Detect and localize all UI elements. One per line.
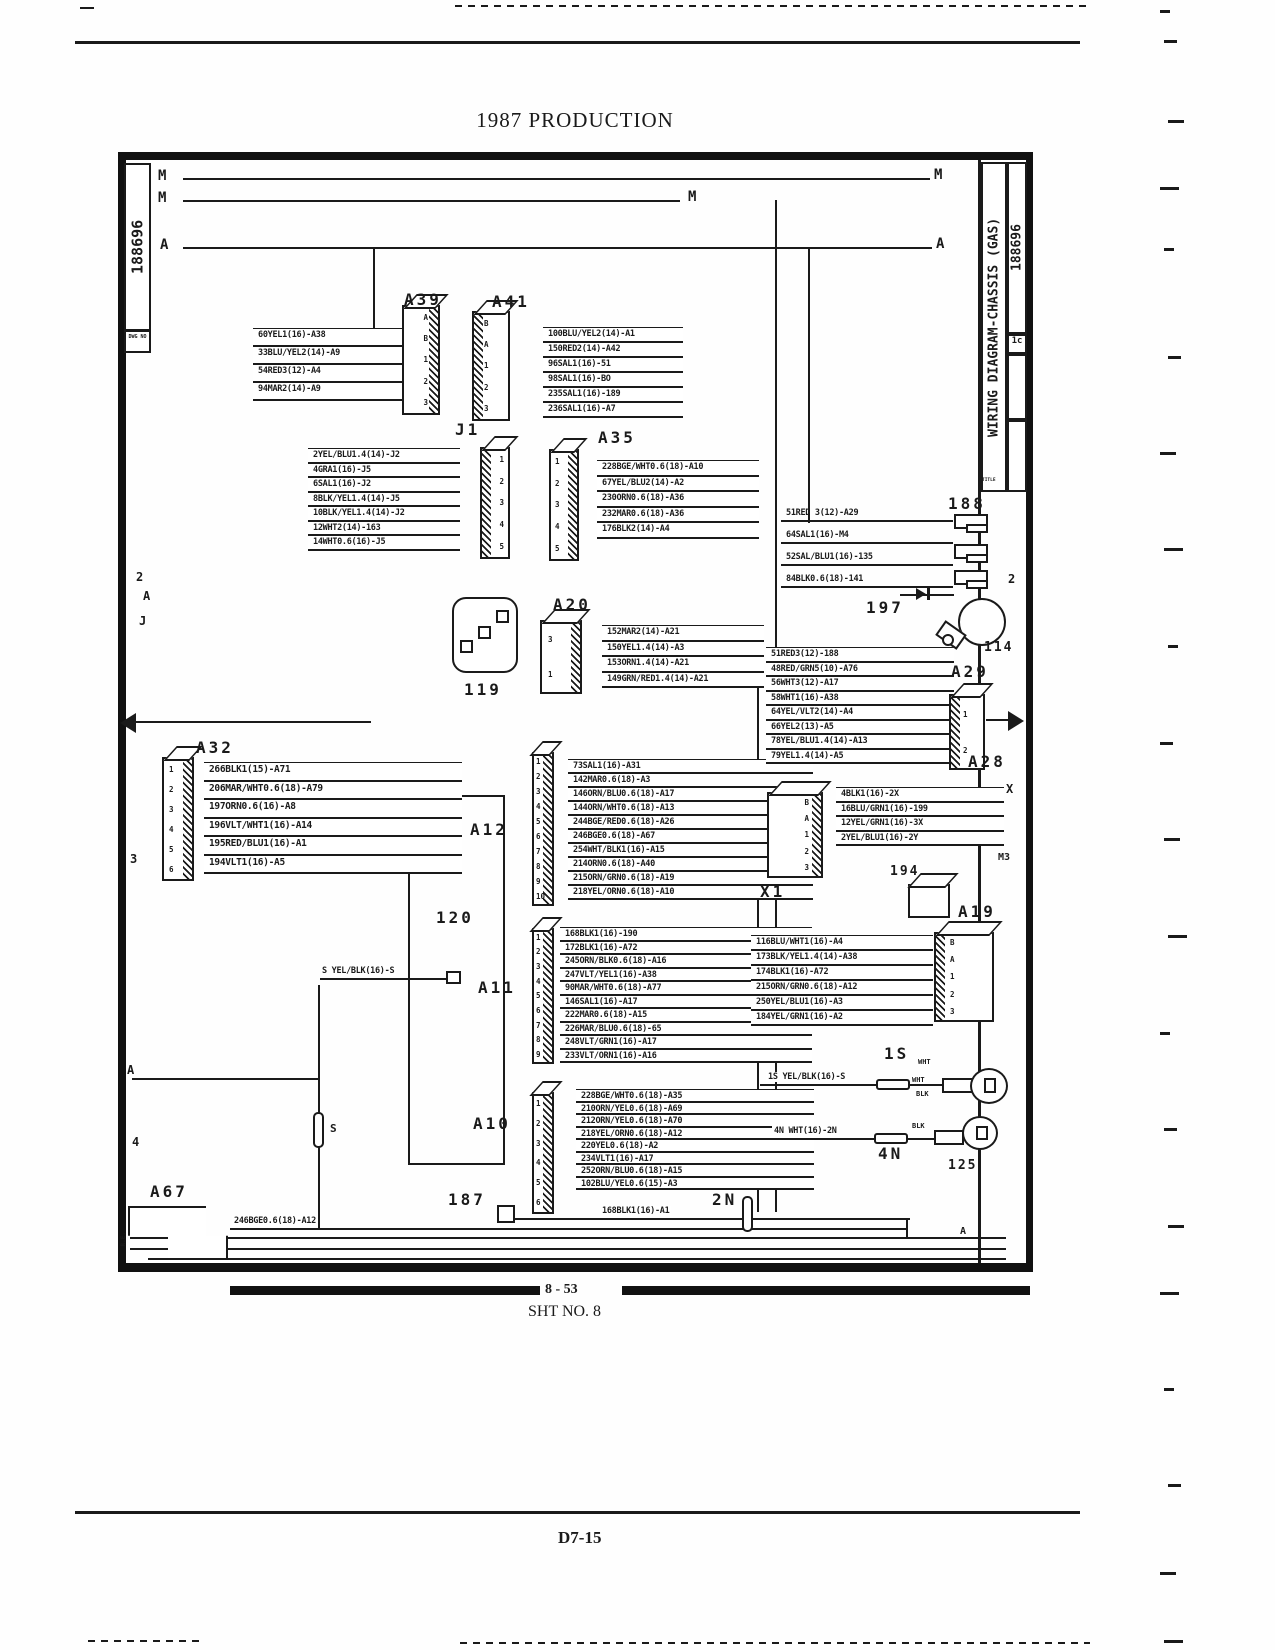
- bus-label-m-mid: M: [688, 189, 696, 205]
- lamp-contact: [984, 1078, 996, 1093]
- doc-number-right: 188696: [1007, 162, 1027, 334]
- component-119-knob: [460, 640, 473, 653]
- sheet-range: 8 - 53: [545, 1282, 578, 1298]
- edge-marker: 4: [132, 1135, 139, 1149]
- wire-label: 176BLK2(14)-A4: [597, 522, 759, 539]
- spade-terminal-icon: [966, 554, 988, 563]
- pin-number: 6: [169, 865, 174, 874]
- wire-label: 12YEL/GRN1(16)-3X: [836, 816, 1004, 832]
- pin-number: 7: [536, 847, 545, 856]
- wire-stack-a29: 51RED3(12)-18848RED/GRN5(10)-A7656WHT3(1…: [766, 648, 954, 764]
- bus-m1: [183, 178, 930, 180]
- wire-label: S YEL/BLK(16)-S: [320, 966, 396, 976]
- pin-number: 5: [536, 817, 545, 826]
- frame-right: [1026, 152, 1033, 1272]
- connector-a39: AB123: [402, 305, 440, 415]
- sheet-number: SHT NO. 8: [528, 1303, 601, 1321]
- pin-number: 5: [536, 991, 541, 1000]
- margin-tick: [1160, 187, 1179, 190]
- wire-color-tag: WHT: [918, 1058, 931, 1066]
- wire-label: 64YEL/VLT2(14)-A4: [766, 705, 954, 721]
- connector-label-a29: A29: [951, 662, 989, 681]
- margin-tick: [1168, 645, 1178, 648]
- titleblock-cell: [1007, 420, 1027, 492]
- margin-tick: [1160, 1032, 1170, 1035]
- margin-tick: [1160, 452, 1176, 455]
- doc-number-left: 188696: [124, 163, 151, 331]
- pin-number: 3: [499, 498, 504, 507]
- wire-label: 206MAR/WHT0.6(18)-A79: [204, 781, 462, 801]
- pin-number: 4: [536, 977, 541, 986]
- wire-stack-a35: 228BGE/WHT0.6(18)-A1067YEL/BLU2(14)-A223…: [597, 461, 759, 539]
- margin-tick: [1164, 1388, 1174, 1391]
- right-arrow-icon: [1008, 711, 1024, 731]
- connector-label-x1: X1: [760, 882, 785, 901]
- edge-marker: 2: [1008, 572, 1015, 586]
- component-label-2n: 2N: [712, 1190, 737, 1209]
- wire: [230, 1228, 908, 1230]
- wire-label: 4N WHT(16)-2N: [772, 1126, 839, 1136]
- margin-tick: [1168, 935, 1187, 938]
- wire-label: 235SAL1(16)-189: [543, 387, 683, 403]
- wire-label: 195RED/BLU1(16)-A1: [204, 836, 462, 856]
- wire-label: 60YEL1(16)-A38: [253, 328, 403, 347]
- diode-bar: [927, 588, 930, 600]
- connector-a67: [128, 1206, 228, 1260]
- connector-label-a41: A41: [492, 292, 530, 311]
- trunk: [808, 247, 810, 523]
- wire-stack-j1: 2YEL/BLU1.4(14)-J24GRA1(16)-J56SAL1(16)-…: [308, 449, 460, 551]
- pin-number: 1: [536, 757, 545, 766]
- wire-label: 150YEL1.4(14)-A3: [602, 641, 764, 658]
- connector-label-a11: A11: [478, 978, 516, 997]
- wiring-diagram-page: 1987 PRODUCTION 188696 DWG NO WIRING DIA…: [0, 0, 1275, 1650]
- wire-label: 232MAR0.6(18)-A36: [597, 507, 759, 524]
- pin-number: 9: [536, 877, 545, 886]
- margin-tick: [1164, 548, 1183, 551]
- pin-number: 2: [169, 785, 174, 794]
- bus-label-m-right: M: [934, 167, 942, 183]
- wire-label: 194VLT1(16)-A5: [204, 855, 462, 875]
- pin-number: 1: [536, 1099, 541, 1108]
- connector-label-a32: A32: [196, 738, 234, 757]
- pin-number: 5: [499, 542, 504, 551]
- pin-number: 2: [950, 990, 955, 999]
- margin-tick: [1168, 356, 1181, 359]
- pin-number: 3: [536, 1139, 541, 1148]
- wire-color-tag: BLK: [912, 1122, 925, 1130]
- wire-stack-188: 51RED 3(12)-A2964SAL1(16)-M452SAL/BLU1(1…: [781, 500, 953, 588]
- pin-number: 3: [950, 1007, 955, 1016]
- wire-color-tag: BLK: [916, 1090, 929, 1098]
- wire-label: 33BLU/YEL2(14)-A9: [253, 346, 403, 365]
- pin-number: 9: [536, 1050, 541, 1059]
- pin-number: 2: [555, 479, 560, 488]
- connector-label-a35: A35: [598, 428, 636, 447]
- pin-number: 6: [536, 832, 545, 841]
- wire: [132, 1078, 318, 1080]
- wire-label: 233VLT/ORN1(16)-A16: [560, 1049, 812, 1064]
- pin-number: 3: [484, 404, 489, 413]
- pin-number: 1: [484, 361, 489, 370]
- pin-number: A: [484, 340, 489, 349]
- component-114-body: [958, 598, 1006, 646]
- margin-tick: [1160, 1292, 1179, 1295]
- titleblock-cell: [1007, 354, 1027, 420]
- wire-label: 100BLU/YEL2(14)-A1: [543, 327, 683, 343]
- component-label-125: 125: [948, 1158, 977, 1173]
- edge-marker: 3: [130, 852, 137, 866]
- wire-label: 152MAR2(14)-A21: [602, 625, 764, 642]
- wire-label: 250YEL/BLU1(16)-A3: [751, 995, 933, 1011]
- edge-marker: A: [127, 1063, 134, 1077]
- inline-connector: [446, 971, 461, 984]
- wire-label: 2YEL/BLU1.4(14)-J2: [308, 448, 460, 464]
- wire-label: 51RED 3(12)-A29: [781, 499, 953, 522]
- dwg-no-label-left: DWG NO: [124, 330, 151, 353]
- wire-label: 58WHT1(16)-A38: [766, 691, 954, 707]
- pin-number: 2: [536, 772, 545, 781]
- wire-stack-a32: 266BLK1(15)-A71206MAR/WHT0.6(18)-A79197O…: [204, 763, 462, 874]
- wire-label: 79YEL1.4(14)-A5: [766, 749, 954, 765]
- wire: [760, 1084, 970, 1086]
- wire-label: 14WHT0.6(16)-J5: [308, 535, 460, 551]
- bus-label-m: M: [158, 168, 166, 184]
- margin-tick: [1164, 248, 1174, 251]
- pin-number: 1: [804, 830, 809, 839]
- page-title: 1987 PRODUCTION: [0, 108, 1150, 133]
- connector-label-a67: A67: [150, 1182, 188, 1201]
- sheet-bar-left: [230, 1286, 540, 1295]
- drawing-title-vertical: WIRING DIAGRAM-CHASSIS (GAS): [981, 162, 1007, 492]
- component-label-119: 119: [464, 680, 502, 699]
- wire-label: 51RED3(12)-188: [766, 647, 954, 663]
- pin-number: 2: [499, 477, 504, 486]
- pin-number: A: [804, 814, 809, 823]
- bus-label-a: A: [160, 237, 168, 253]
- wire-label: 230ORN0.6(18)-A36: [597, 491, 759, 508]
- connector-x1: BA123: [767, 792, 823, 878]
- pin-number: B: [950, 938, 955, 947]
- pin-number: 4: [169, 825, 174, 834]
- wire-stack-x1: 4BLK1(16)-2X16BLU/GRN1(16)-19912YEL/GRN1…: [836, 788, 1004, 846]
- margin-tick: [1160, 10, 1170, 13]
- wire-label: 52SAL/BLU1(16)-135: [781, 543, 953, 566]
- component-label-114: 114: [984, 640, 1013, 655]
- connector-label-j1: J1: [455, 420, 480, 439]
- wire-label: 234VLT1(16)-A17: [576, 1152, 814, 1166]
- wire-label: 215ORN/GRN0.6(18)-A12: [751, 980, 933, 996]
- wire: [515, 1218, 910, 1220]
- edge-marker: J: [139, 614, 146, 628]
- splice-label: S: [330, 1122, 337, 1135]
- pin-number: A: [950, 955, 955, 964]
- spade-terminal-icon: [966, 524, 988, 533]
- wire-label: 4GRA1(16)-J5: [308, 463, 460, 479]
- wire-label: 196VLT/WHT1(16)-A14: [204, 818, 462, 838]
- top-rule: [75, 41, 1080, 44]
- component-label-120: 120: [436, 908, 474, 927]
- wire-label: 6SAL1(16)-J2: [308, 477, 460, 493]
- bottom-dashed-rule: [460, 1642, 1090, 1644]
- pin-number: 1: [548, 670, 553, 679]
- wire-label: 48RED/GRN5(10)-A76: [766, 662, 954, 678]
- bottom-bus: [130, 1237, 1006, 1239]
- wire-label: 246BGE0.6(18)-A12: [232, 1216, 318, 1226]
- connector-a12: 12345678910: [532, 752, 554, 906]
- pin-number: A: [423, 313, 428, 322]
- lamp-socket-stem: [934, 1130, 964, 1145]
- wire-label: 173BLK/YEL1.4(14)-A38: [751, 950, 933, 966]
- wire-label: 84BLK0.6(18)-141: [781, 565, 953, 588]
- splice-capsule: [313, 1112, 324, 1148]
- pin-number: 3: [536, 787, 545, 796]
- trunk: [318, 985, 320, 1228]
- wire-label: 228BGE/WHT0.6(18)-A10: [597, 460, 759, 477]
- pin-number: 2: [536, 1119, 541, 1128]
- top-tick: [80, 7, 94, 9]
- pin-number: 6: [536, 1006, 541, 1015]
- frame-top: [118, 152, 1033, 160]
- pin-number: 2: [423, 377, 428, 386]
- wire-label: 12WHT2(14)-163: [308, 521, 460, 537]
- pin-number: 3: [804, 863, 809, 872]
- frame-bottom: [118, 1263, 1033, 1272]
- rev-cell: 1c: [1007, 334, 1027, 354]
- margin-tick: [1164, 838, 1180, 841]
- pin-number: 8: [536, 862, 545, 871]
- pin-number: 8: [536, 1035, 541, 1044]
- pin-number: 5: [536, 1178, 541, 1187]
- wire-label: 78YEL/BLU1.4(14)-A13: [766, 734, 954, 750]
- connector-a11: 123456789: [532, 928, 554, 1064]
- margin-tick: [1160, 1572, 1176, 1575]
- wire-stack-a20: 152MAR2(14)-A21150YEL1.4(14)-A3153ORN1.4…: [602, 626, 764, 688]
- margin-tick: [1160, 742, 1173, 745]
- edge-marker: A: [960, 1226, 966, 1237]
- pin-number: 3: [555, 500, 560, 509]
- component-label-188: 188: [948, 494, 986, 513]
- pin-number: 1: [423, 355, 428, 364]
- pin-number: 3: [169, 805, 174, 814]
- margin-tick: [1164, 40, 1177, 43]
- wire-label: 1S YEL/BLK(16)-S: [766, 1072, 847, 1082]
- bottom-bus: [130, 1248, 1006, 1250]
- title-label: TITLE: [982, 478, 996, 483]
- pin-number: 2: [804, 847, 809, 856]
- wire-color-tag: WHT: [912, 1076, 925, 1084]
- connector-label-a12: A12: [470, 820, 508, 839]
- pin-number: 4: [536, 802, 545, 811]
- connector-a32: 123456: [162, 757, 194, 881]
- component-label-187: 187: [448, 1190, 486, 1209]
- wire-label: 236SAL1(16)-A7: [543, 402, 683, 418]
- wire-stack-a10: 228BGE/WHT0.6(18)-A35210ORN/YEL0.6(18)-A…: [576, 1090, 814, 1190]
- lamp-contact: [976, 1126, 988, 1140]
- bottom-bus: [148, 1258, 1006, 1260]
- wire-label: 210ORN/YEL0.6(18)-A69: [576, 1102, 814, 1116]
- wire-label: 228BGE/WHT0.6(18)-A35: [576, 1089, 814, 1103]
- trunk: [373, 247, 375, 332]
- bottom-dashed-rule: [88, 1640, 200, 1642]
- pin-number: 3: [536, 962, 541, 971]
- wire-label: 266BLK1(15)-A71: [204, 762, 462, 782]
- pin-number: 4: [555, 522, 560, 531]
- edge-marker: 2: [136, 570, 143, 584]
- component-187: [497, 1205, 515, 1223]
- wire-label: 102BLU/YEL0.6(15)-A3: [576, 1177, 814, 1191]
- wire-label: 248VLT/GRN1(16)-A17: [560, 1035, 812, 1050]
- pin-number: 1: [963, 710, 968, 719]
- connector-a19: BA123: [934, 932, 994, 1022]
- edge-marker: X: [1006, 782, 1013, 796]
- pin-number: 2: [536, 947, 541, 956]
- corner-note: R.E.: [120, 1232, 127, 1246]
- pin-number: 1: [555, 457, 560, 466]
- sheet-bar-right: [622, 1286, 1030, 1295]
- wire-label: 2YEL/BLU1(16)-2Y: [836, 831, 1004, 847]
- margin-tick: [1168, 1225, 1184, 1228]
- component-label-1s: 1S: [884, 1044, 909, 1063]
- wire-label: 98SAL1(16)-BO: [543, 372, 683, 388]
- edge-marker: A: [143, 589, 150, 603]
- wire-stack-a19: 116BLU/WHT1(16)-A4173BLK/YEL1.4(14)-A381…: [751, 936, 933, 1026]
- wire-label: 8BLK/YEL1.4(14)-J5: [308, 492, 460, 508]
- pin-number: 6: [536, 1198, 541, 1207]
- wire-label: 184YEL/GRN1(16)-A2: [751, 1010, 933, 1026]
- pin-number: 4: [499, 520, 504, 529]
- pin-number: B: [484, 319, 489, 328]
- pin-number: 3: [423, 398, 428, 407]
- wire-label: 54RED3(12)-A4: [253, 364, 403, 383]
- pin-number: B: [804, 798, 809, 807]
- connector-a20: 31: [540, 620, 582, 694]
- wire-label: 116BLU/WHT1(16)-A4: [751, 935, 933, 951]
- connector-label-a20: A20: [553, 595, 591, 614]
- wire-label: 220YEL0.6(18)-A2: [576, 1139, 814, 1153]
- left-arrow-icon: [120, 713, 136, 733]
- pin-number: 2: [484, 383, 489, 392]
- bus-a: [183, 247, 932, 249]
- component-119-knob: [478, 626, 491, 639]
- component-label-194: 194: [890, 864, 919, 879]
- arrow-line: [133, 721, 371, 723]
- pin-number: 2: [963, 746, 968, 755]
- wire-label: 252ORN/BLU0.6(18)-A15: [576, 1164, 814, 1178]
- connector-j1: 12345: [480, 447, 510, 559]
- pin-number: 7: [536, 1021, 541, 1030]
- footer-rule: [75, 1511, 1080, 1514]
- inline-connector: [876, 1079, 910, 1090]
- top-dashed-rule: [455, 5, 1090, 7]
- pin-number: 1: [536, 933, 541, 942]
- component-119-knob: [496, 610, 509, 623]
- pin-number: 5: [169, 845, 174, 854]
- component-194: [908, 884, 950, 918]
- component-114-eyelet: [942, 634, 954, 646]
- pin-number: 1: [499, 455, 504, 464]
- wire-label: 149GRN/RED1.4(14)-A21: [602, 672, 764, 689]
- pin-number: B: [423, 334, 428, 343]
- connector-label-a10: A10: [473, 1114, 511, 1133]
- pin-number: 4: [536, 1158, 541, 1167]
- wire-label: 10BLK/YEL1.4(14)-J2: [308, 506, 460, 522]
- pin-number: 5: [555, 544, 560, 553]
- margin-tick: [1168, 120, 1184, 123]
- wire-label: 96SAL1(16)-51: [543, 357, 683, 373]
- wire-label: 16BLU/GRN1(16)-199: [836, 802, 1004, 818]
- bus-m2: [183, 200, 680, 202]
- margin-tick: [1168, 1484, 1181, 1487]
- wire-stack-a41: 100BLU/YEL2(14)-A1150RED2(14)-A4296SAL1(…: [543, 328, 683, 418]
- component-label-4n: 4N: [878, 1144, 903, 1163]
- wire-label: 56WHT3(12)-A17: [766, 676, 954, 692]
- pin-number: 10: [536, 892, 545, 901]
- margin-tick: [1164, 1640, 1183, 1643]
- wire-stack-a39: 60YEL1(16)-A3833BLU/YEL2(14)-A954RED3(12…: [253, 329, 403, 401]
- connector-label-a28: A28: [968, 752, 1006, 771]
- wire-label: 66YEL2(13)-A5: [766, 720, 954, 736]
- splice-capsule-2n: [742, 1196, 753, 1232]
- pin-number: 1: [169, 765, 174, 774]
- pin-number: 3: [548, 635, 553, 644]
- component-label-197: 197: [866, 598, 904, 617]
- wire-label: 153ORN1.4(14)-A21: [602, 656, 764, 673]
- margin-tick: [1164, 1128, 1177, 1131]
- connector-a35: 12345: [549, 449, 579, 561]
- bus-label-a-right: A: [936, 236, 944, 252]
- spade-terminal-icon: [966, 580, 988, 589]
- wire-label: 197ORN0.6(16)-A8: [204, 799, 462, 819]
- footer-page-number: D7-15: [558, 1528, 601, 1548]
- connector-label-a39: A39: [404, 290, 442, 309]
- bus-label-m: M: [158, 190, 166, 206]
- wire-label: 94MAR2(14)-A9: [253, 382, 403, 401]
- wire-label: 150RED2(14)-A42: [543, 342, 683, 358]
- wire-label: 64SAL1(16)-M4: [781, 521, 953, 544]
- connector-a41: BA123: [472, 311, 510, 421]
- edge-marker: M3: [998, 852, 1010, 863]
- pin-number: 1: [950, 972, 955, 981]
- connector-a10: 123456: [532, 1092, 554, 1214]
- connector-label-a19: A19: [958, 902, 996, 921]
- wire-label: 67YEL/BLU2(14)-A2: [597, 476, 759, 493]
- diode-icon: [916, 588, 926, 600]
- wire-label: 174BLK1(16)-A72: [751, 965, 933, 981]
- wire-label: 4BLK1(16)-2X: [836, 787, 1004, 803]
- wire-label: 168BLK1(16)-A1: [600, 1206, 671, 1216]
- inline-connector: [874, 1133, 908, 1144]
